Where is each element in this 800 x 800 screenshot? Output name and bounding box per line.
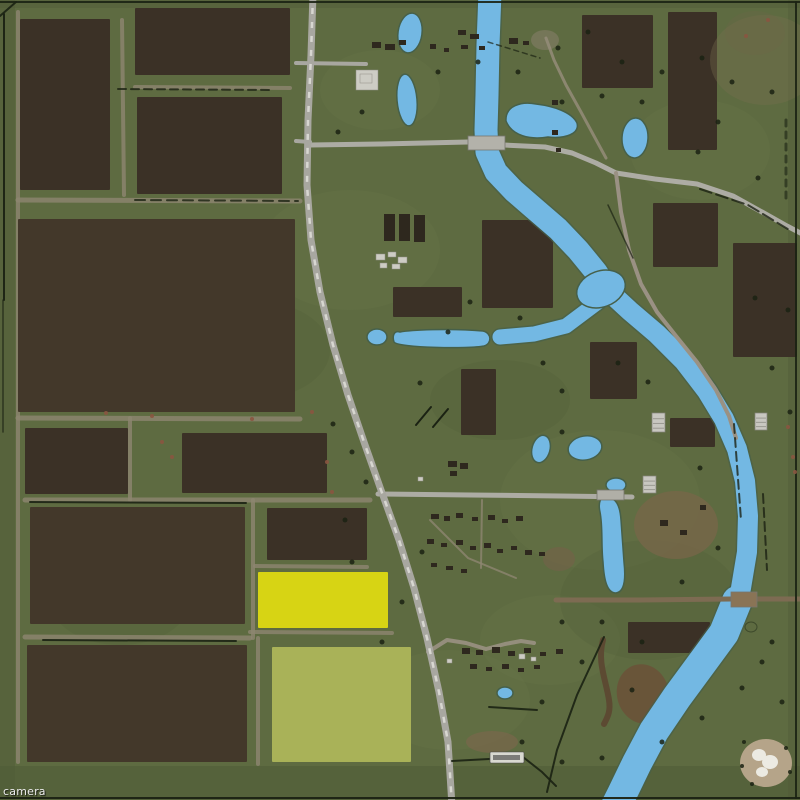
building: [660, 520, 668, 526]
tree: [680, 580, 685, 585]
building-light: [388, 252, 396, 257]
building: [540, 652, 546, 656]
road: [556, 599, 800, 600]
tree: [788, 410, 793, 415]
bush: [160, 440, 164, 444]
tree: [446, 330, 451, 335]
quarry-rock: [762, 755, 778, 769]
lake: [393, 329, 490, 347]
map-svg: [0, 0, 800, 800]
tree: [660, 740, 665, 745]
building: [441, 543, 447, 547]
tree: [756, 176, 761, 181]
tree: [770, 640, 775, 645]
building: [446, 566, 453, 570]
building: [448, 461, 457, 467]
field: [733, 243, 797, 357]
shed: [643, 476, 656, 493]
bush: [150, 414, 154, 418]
building: [518, 668, 524, 672]
pond: [497, 687, 513, 699]
quarry: [740, 739, 792, 787]
building: [680, 530, 687, 535]
tree: [700, 716, 705, 721]
building: [484, 543, 491, 548]
building: [509, 38, 518, 44]
building: [497, 549, 503, 553]
building: [502, 664, 509, 669]
building: [470, 34, 479, 39]
tree: [660, 70, 665, 75]
tree: [520, 740, 525, 745]
river-island: [745, 622, 757, 632]
camera-label: camera: [3, 785, 46, 798]
building-light: [380, 263, 387, 268]
building: [456, 540, 463, 545]
building: [556, 649, 563, 654]
tree: [468, 300, 473, 305]
building: [431, 514, 439, 519]
tree: [716, 546, 721, 551]
shed: [652, 413, 665, 432]
field: [582, 15, 653, 88]
field: [25, 428, 128, 494]
road: [378, 494, 632, 497]
building: [523, 41, 529, 45]
tree: [360, 110, 365, 115]
tree: [620, 60, 625, 65]
tree: [518, 316, 523, 321]
field: [461, 369, 496, 435]
building: [470, 546, 476, 550]
bush: [325, 460, 329, 464]
tree: [730, 80, 735, 85]
building: [461, 569, 467, 573]
building: [492, 647, 500, 653]
bush: [330, 490, 334, 494]
building: [460, 463, 468, 469]
building-light: [447, 659, 452, 663]
building: [414, 215, 425, 242]
bush: [766, 18, 770, 22]
building-light: [360, 74, 372, 83]
tree: [476, 60, 481, 65]
tree: [780, 700, 785, 705]
building-light: [531, 657, 536, 661]
building: [444, 48, 449, 52]
tree: [350, 560, 355, 565]
tree: [400, 600, 405, 605]
tree: [700, 56, 705, 61]
field: [182, 433, 327, 493]
building: [431, 563, 437, 567]
building: [534, 665, 540, 669]
building: [476, 650, 483, 655]
building-light: [398, 257, 407, 263]
building-light: [519, 654, 525, 659]
tree: [760, 660, 765, 665]
signpost-text-smudge: [493, 755, 520, 760]
tree: [420, 550, 425, 555]
bridge: [731, 592, 757, 607]
bush: [170, 455, 174, 459]
building: [444, 516, 450, 521]
building: [472, 517, 478, 521]
field: [482, 220, 553, 308]
building: [461, 45, 468, 49]
tree: [556, 46, 561, 51]
bush: [793, 470, 797, 474]
tree: [698, 466, 703, 471]
tree: [770, 90, 775, 95]
tree: [560, 100, 565, 105]
tree: [640, 640, 645, 645]
building: [430, 44, 436, 49]
field: [590, 342, 637, 399]
field: [135, 8, 290, 75]
field: [137, 97, 282, 194]
tree: [586, 30, 591, 35]
tree: [336, 130, 341, 135]
bridge: [468, 136, 505, 150]
tree: [364, 480, 369, 485]
bush: [786, 425, 790, 429]
tree: [541, 361, 546, 366]
building: [511, 546, 517, 550]
tree: [560, 430, 565, 435]
tree: [560, 760, 565, 765]
tree: [516, 70, 521, 75]
building: [372, 42, 381, 48]
road: [296, 63, 366, 64]
tree: [616, 361, 621, 366]
building: [450, 471, 457, 476]
tree: [580, 660, 585, 665]
field: [668, 12, 717, 150]
tree: [696, 150, 701, 155]
building: [479, 46, 485, 50]
building: [427, 539, 434, 544]
tree: [418, 381, 423, 386]
tree: [630, 688, 635, 693]
building: [539, 552, 545, 556]
tree: [343, 518, 348, 523]
tree: [350, 450, 355, 455]
building: [524, 648, 531, 653]
bridge: [597, 490, 624, 500]
building: [552, 100, 558, 105]
bush: [250, 417, 254, 421]
field: [670, 418, 715, 447]
building: [462, 648, 470, 654]
building: [470, 664, 477, 669]
tree: [560, 620, 565, 625]
road: [310, 142, 468, 145]
quarry-rock: [756, 767, 768, 777]
tree: [640, 100, 645, 105]
tree: [331, 422, 336, 427]
building: [399, 40, 406, 45]
building: [458, 30, 466, 35]
field: [272, 647, 411, 762]
building: [700, 505, 706, 510]
bush: [310, 410, 314, 414]
building: [502, 519, 508, 523]
map-viewport[interactable]: camera: [0, 0, 800, 800]
tree: [786, 308, 791, 313]
bush: [744, 34, 748, 38]
tree: [753, 296, 758, 301]
building-light: [376, 254, 385, 260]
tree: [600, 620, 605, 625]
tree: [600, 94, 605, 99]
tree: [600, 756, 605, 761]
tree: [740, 686, 745, 691]
field: [20, 19, 110, 190]
field: [267, 508, 367, 560]
signpost: [490, 752, 524, 763]
field: [653, 203, 718, 267]
building: [456, 513, 463, 518]
building: [516, 516, 523, 521]
building-light: [392, 264, 400, 269]
building: [385, 44, 395, 50]
tree: [646, 380, 651, 385]
building: [399, 214, 410, 241]
field: [27, 645, 247, 762]
tree: [560, 389, 565, 394]
building: [556, 148, 561, 152]
building: [508, 651, 515, 656]
bush: [104, 411, 108, 415]
building: [525, 550, 532, 555]
tree: [436, 70, 441, 75]
field: [393, 287, 462, 317]
shed: [755, 413, 767, 430]
field: [30, 507, 245, 624]
bush: [791, 455, 795, 459]
tree: [540, 700, 545, 705]
building: [488, 515, 495, 520]
field: [258, 572, 388, 628]
building: [552, 130, 558, 135]
pond: [367, 329, 387, 345]
field: [18, 219, 295, 412]
tree: [380, 640, 385, 645]
tree: [770, 366, 775, 371]
building: [486, 667, 492, 671]
tree: [716, 120, 721, 125]
building-light: [418, 477, 423, 481]
building: [384, 214, 395, 241]
